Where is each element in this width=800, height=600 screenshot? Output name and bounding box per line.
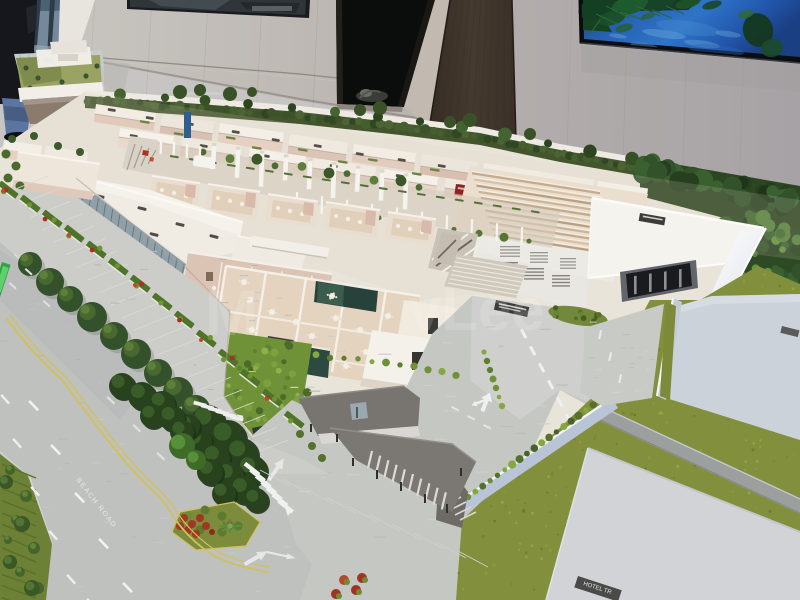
svg-text:M: M [205,277,258,349]
svg-text:vLee: vLee [408,276,545,343]
